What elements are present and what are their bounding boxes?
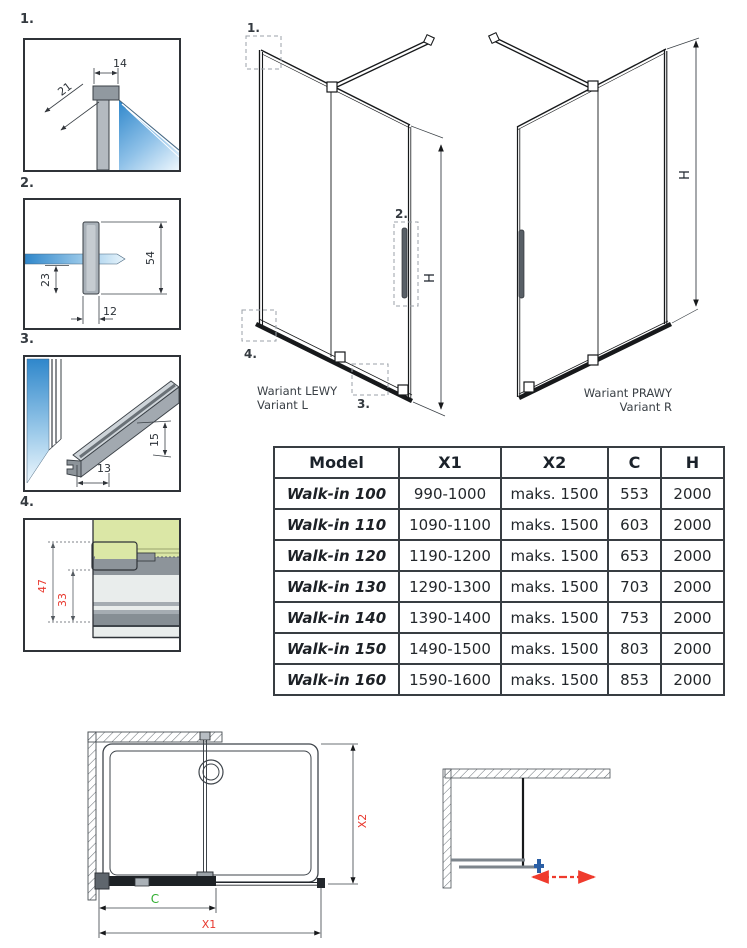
header-h: H bbox=[661, 447, 724, 478]
variant-right-subtitle: Variant R bbox=[620, 400, 672, 414]
cell-c: 653 bbox=[608, 540, 661, 571]
cell-model: Walk-in 110 bbox=[274, 509, 399, 540]
dim-54-label: 54 bbox=[144, 251, 157, 265]
cell-h: 2000 bbox=[661, 664, 724, 695]
callout-1: 1. bbox=[247, 21, 260, 35]
dim-13-label: 13 bbox=[97, 462, 111, 475]
callout-4: 4. bbox=[244, 347, 257, 361]
variant-right-drawing: H Wariant PRAWY Variant R bbox=[460, 14, 720, 420]
dimension-47 bbox=[48, 542, 92, 622]
cell-x1: 1090-1100 bbox=[399, 509, 501, 540]
dim-12-label: 12 bbox=[103, 305, 117, 318]
door-handle bbox=[519, 230, 524, 298]
cell-h: 2000 bbox=[661, 509, 724, 540]
callout-2: 2. bbox=[395, 207, 408, 221]
table-header-row: Model X1 X2 C H bbox=[274, 447, 724, 478]
table-row: Walk-in 120 1190-1200 maks. 1500 653 200… bbox=[274, 540, 724, 571]
cell-x2: maks. 1500 bbox=[501, 540, 608, 571]
fixed-panel-end-cap bbox=[317, 878, 325, 888]
back-wall bbox=[445, 769, 610, 778]
detail-2-drawing: 54 23 12 bbox=[25, 200, 179, 328]
cell-h: 2000 bbox=[661, 540, 724, 571]
detail-4-label: 4. bbox=[20, 495, 34, 510]
variant-right-title: Wariant PRAWY bbox=[584, 386, 673, 400]
cell-x1: 1290-1300 bbox=[399, 571, 501, 602]
walk-in-spec-sheet: 1. bbox=[0, 0, 747, 948]
callout-3: 3. bbox=[357, 397, 370, 411]
handle-bar bbox=[83, 222, 99, 294]
height-label: H bbox=[423, 273, 438, 283]
table-row: Walk-in 130 1290-1300 maks. 1500 703 200… bbox=[274, 571, 724, 602]
cell-model: Walk-in 160 bbox=[274, 664, 399, 695]
cell-x2: maks. 1500 bbox=[501, 633, 608, 664]
cell-c: 753 bbox=[608, 602, 661, 633]
dim-21-label: 21 bbox=[55, 80, 74, 99]
header-c: C bbox=[608, 447, 661, 478]
header-model: Model bbox=[274, 447, 399, 478]
glass-panel bbox=[25, 254, 125, 264]
cell-x2: maks. 1500 bbox=[501, 602, 608, 633]
cell-x2: maks. 1500 bbox=[501, 571, 608, 602]
glass-panel bbox=[119, 100, 179, 170]
dim-23-label: 23 bbox=[39, 273, 52, 287]
cell-x1: 1490-1500 bbox=[399, 633, 501, 664]
cell-h: 2000 bbox=[661, 571, 724, 602]
cell-h: 2000 bbox=[661, 478, 724, 509]
cell-x2: maks. 1500 bbox=[501, 664, 608, 695]
cell-h: 2000 bbox=[661, 633, 724, 664]
height-label: H bbox=[678, 170, 693, 180]
x2-dimension bbox=[321, 744, 358, 884]
side-wall bbox=[443, 769, 451, 888]
detail-4-box: 47 33 bbox=[23, 518, 181, 652]
detail-4-drawing: 47 33 bbox=[25, 520, 179, 650]
cell-c: 803 bbox=[608, 633, 661, 664]
cell-c: 553 bbox=[608, 478, 661, 509]
spec-table: Model X1 X2 C H Walk-in 100 990-1000 mak… bbox=[273, 446, 725, 696]
cell-h: 2000 bbox=[661, 602, 724, 633]
door-handle-marker bbox=[534, 859, 544, 873]
glass-structure bbox=[495, 38, 667, 397]
cell-x1: 1190-1200 bbox=[399, 540, 501, 571]
cell-x1: 1390-1400 bbox=[399, 602, 501, 633]
support-bar-wall-mount bbox=[489, 33, 500, 44]
detail-2-label: 2. bbox=[20, 176, 34, 191]
section-layers bbox=[93, 520, 179, 638]
detail-3-label: 3. bbox=[20, 332, 34, 347]
detail-3-drawing: 13 15 bbox=[25, 357, 179, 490]
cell-model: Walk-in 150 bbox=[274, 633, 399, 664]
detail-1-label: 1. bbox=[20, 12, 34, 27]
c-label: C bbox=[151, 892, 159, 906]
variant-left-title: Wariant LEWY bbox=[257, 384, 338, 398]
cell-model: Walk-in 130 bbox=[274, 571, 399, 602]
support-bar-wall-mount bbox=[424, 35, 435, 46]
dimension-33 bbox=[68, 570, 92, 621]
dim-15-label: 15 bbox=[148, 433, 161, 447]
cell-model: Walk-in 140 bbox=[274, 602, 399, 633]
variant-left-subtitle: Variant L bbox=[257, 398, 308, 412]
variant-left-drawing: 1. 2. 3. 4. H Wariant LEWY Variant L bbox=[235, 14, 450, 420]
shower-tray bbox=[103, 744, 318, 882]
dim-14-label: 14 bbox=[113, 57, 127, 70]
cell-x2: maks. 1500 bbox=[501, 509, 608, 540]
cell-c: 603 bbox=[608, 509, 661, 540]
cell-x1: 1590-1600 bbox=[399, 664, 501, 695]
table-row: Walk-in 150 1490-1500 maks. 1500 803 200… bbox=[274, 633, 724, 664]
door-bracket bbox=[135, 878, 149, 886]
height-dimension bbox=[411, 126, 445, 416]
x1-label: X1 bbox=[202, 918, 217, 931]
detail-1-drawing: 14 21 bbox=[25, 40, 179, 170]
ceiling-support-bar bbox=[197, 732, 213, 884]
detail-1-box: 14 21 bbox=[23, 38, 181, 172]
support-bar-bracket bbox=[327, 82, 337, 92]
dim-33-label: 33 bbox=[56, 593, 69, 607]
glass-panel bbox=[27, 359, 61, 483]
plan-view-drawing: X2 C X1 bbox=[85, 726, 385, 944]
cell-model: Walk-in 120 bbox=[274, 540, 399, 571]
table-row: Walk-in 160 1590-1600 maks. 1500 853 200… bbox=[274, 664, 724, 695]
table-row: Walk-in 110 1090-1100 maks. 1500 603 200… bbox=[274, 509, 724, 540]
cell-model: Walk-in 100 bbox=[274, 478, 399, 509]
wall-profile bbox=[93, 86, 119, 170]
cell-c: 853 bbox=[608, 664, 661, 695]
x2-label: X2 bbox=[356, 814, 369, 829]
detail-3-box: 13 15 bbox=[23, 355, 181, 492]
door-handle bbox=[402, 228, 407, 298]
header-x1: X1 bbox=[399, 447, 501, 478]
table-row: Walk-in 100 990-1000 maks. 1500 553 2000 bbox=[274, 478, 724, 509]
sliding-door bbox=[97, 876, 216, 886]
cell-x1: 990-1000 bbox=[399, 478, 501, 509]
wall-profile bbox=[95, 873, 109, 889]
detail-2-box: 54 23 12 bbox=[23, 198, 181, 330]
cell-c: 703 bbox=[608, 571, 661, 602]
slide-schematic-drawing bbox=[435, 760, 685, 890]
dim-47-label: 47 bbox=[36, 579, 49, 593]
cell-x2: maks. 1500 bbox=[501, 478, 608, 509]
table-row: Walk-in 140 1390-1400 maks. 1500 753 200… bbox=[274, 602, 724, 633]
header-x2: X2 bbox=[501, 447, 608, 478]
support-bar-bracket bbox=[588, 81, 598, 91]
dimension-14 bbox=[94, 68, 118, 84]
bottom-rail-profile bbox=[67, 381, 179, 477]
